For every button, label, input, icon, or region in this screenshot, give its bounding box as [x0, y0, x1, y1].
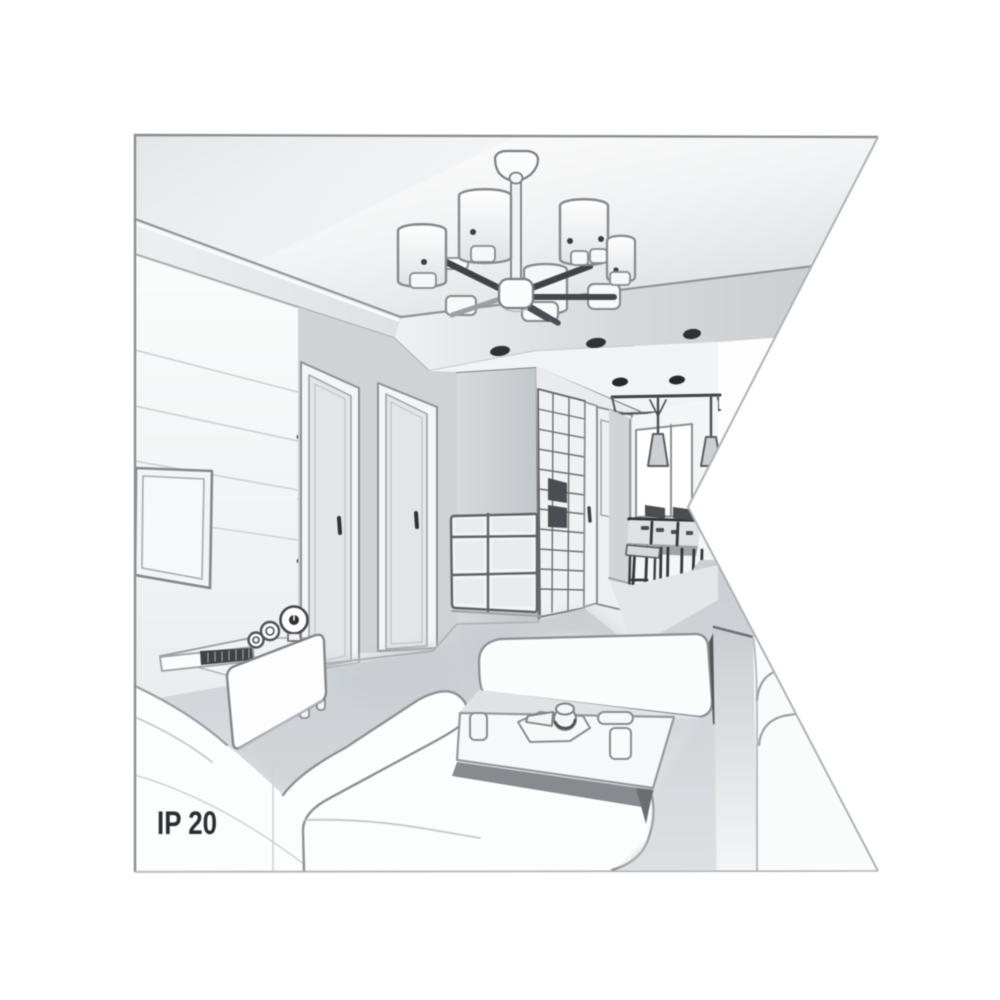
- svg-text:IP 20: IP 20: [157, 805, 217, 841]
